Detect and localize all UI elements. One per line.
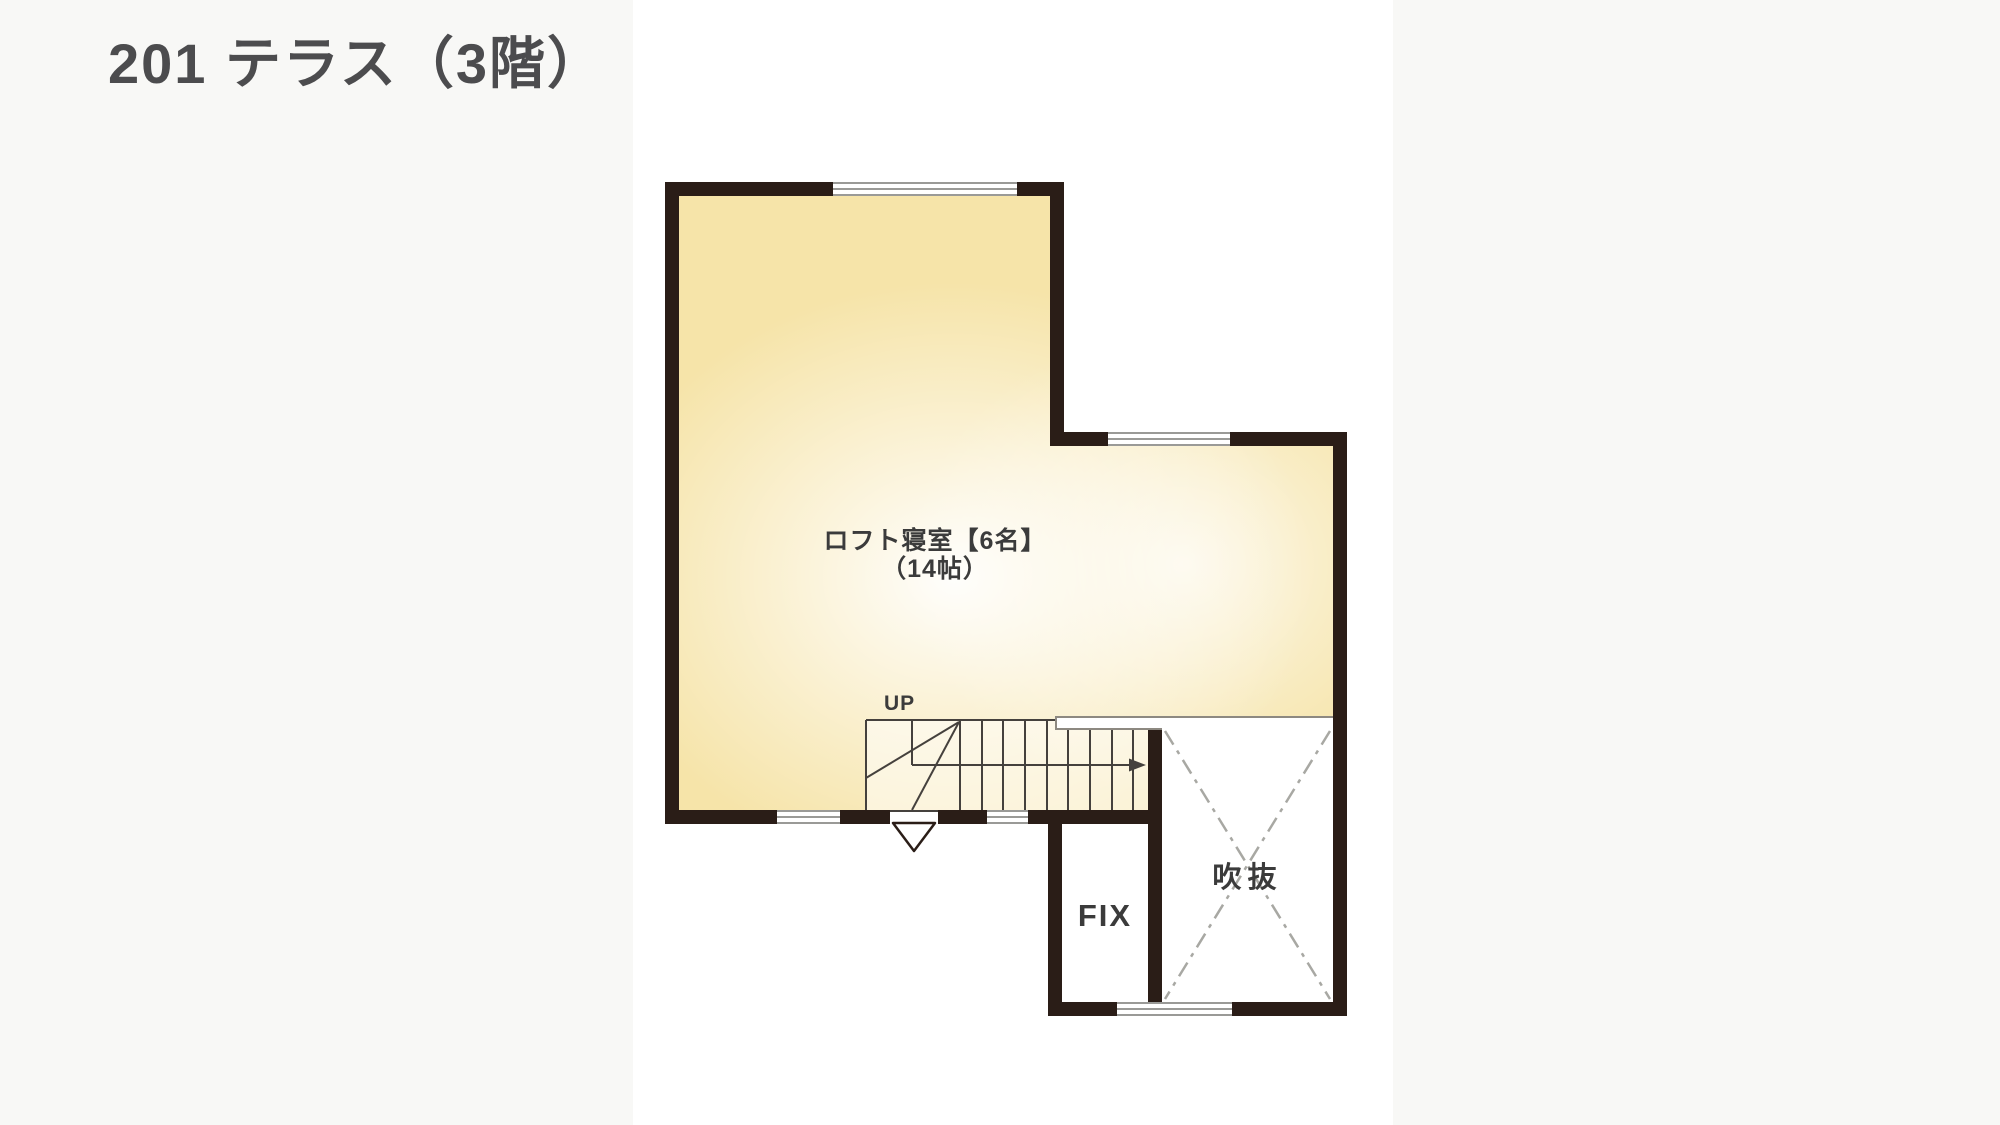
wall-void-left [1148,728,1162,1016]
wall-right [1333,432,1347,1016]
room-name: ロフト寝室【6名】 [785,527,1085,555]
wall-left [665,182,679,824]
floor-plan: ロフト寝室【6名】 （14帖） UP FIX 吹抜 [0,0,2000,1125]
door-swing-icon [888,822,942,856]
window-under-stairs [987,810,1028,824]
fix-window-label: FIX [1062,898,1148,934]
stairs-icon [865,716,1150,812]
wall-fix-left [1048,810,1062,1016]
window-bottom-lower [1117,1002,1232,1016]
floor-plan-page: 201 テラス（3階） [0,0,2000,1125]
window-bottom-left [777,810,840,824]
stairs-up-label: UP [884,692,944,716]
wall-upper-right [1050,182,1064,446]
window-step-wall [1108,432,1230,446]
void-label: 吹抜 [1162,854,1333,896]
room-size: （14帖） [785,555,1085,583]
room-label: ロフト寝室【6名】 （14帖） [785,527,1085,583]
window-top-wall [833,182,1017,196]
